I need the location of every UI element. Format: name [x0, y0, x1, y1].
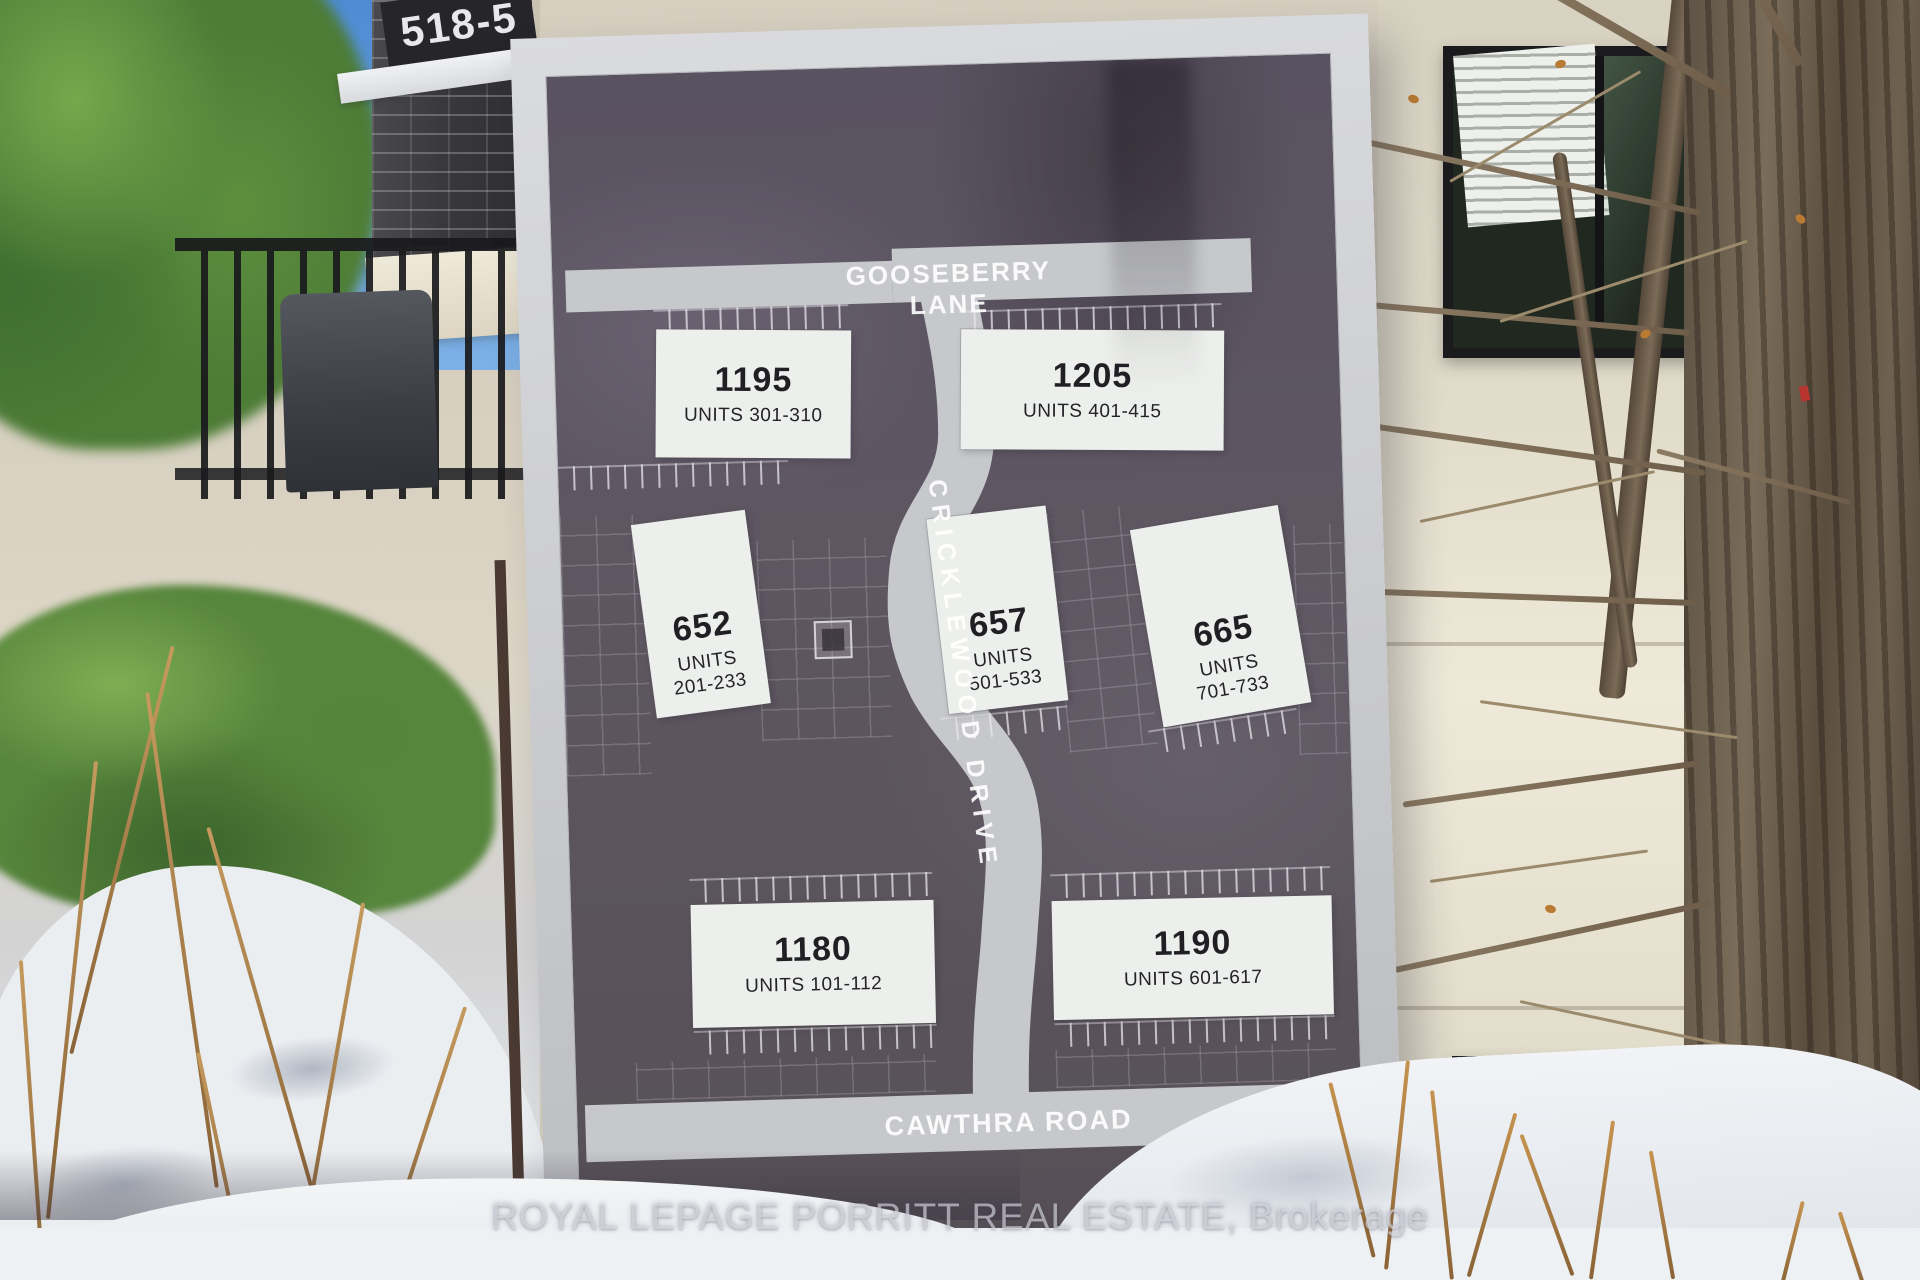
- building-block-1195: 1195 UNITS 301-310: [656, 329, 852, 458]
- site-map-sign: 1195 UNITS 301-310 1205 UNITS 401-415 65…: [510, 14, 1404, 1251]
- watermark-text: ROYAL LEPAGE PORRITT REAL ESTATE, Broker…: [491, 1196, 1428, 1238]
- covered-bbq: [280, 289, 439, 492]
- building-units: UNITS 201-233: [669, 645, 748, 702]
- building-units: UNITS 701-733: [1191, 648, 1271, 707]
- address-text: 518-5: [398, 0, 521, 57]
- building-units: UNITS 601-617: [1124, 966, 1263, 993]
- building-number: 657: [967, 600, 1031, 646]
- street-label-gooseberry-lane: GOOSEBERRY LANE: [806, 254, 1092, 324]
- building-units: UNITS 301-310: [684, 403, 823, 427]
- building-units: UNITS 101-112: [745, 972, 883, 999]
- building-number: 1180: [774, 930, 853, 971]
- building-number: 652: [670, 603, 734, 650]
- building-number: 1195: [714, 360, 792, 399]
- building-block-1190: 1190 UNITS 601-617: [1052, 895, 1334, 1020]
- mail-kiosk: [814, 620, 853, 659]
- photo-scene: 518-5: [0, 0, 1920, 1280]
- building-number: 665: [1190, 607, 1255, 656]
- building-units: UNITS 401-415: [1023, 399, 1162, 423]
- wet-streak: [1106, 58, 1200, 390]
- map-panel: 1195 UNITS 301-310 1205 UNITS 401-415 65…: [545, 53, 1366, 1252]
- building-number: 1190: [1153, 923, 1232, 964]
- building-block-1180: 1180 UNITS 101-112: [691, 900, 937, 1028]
